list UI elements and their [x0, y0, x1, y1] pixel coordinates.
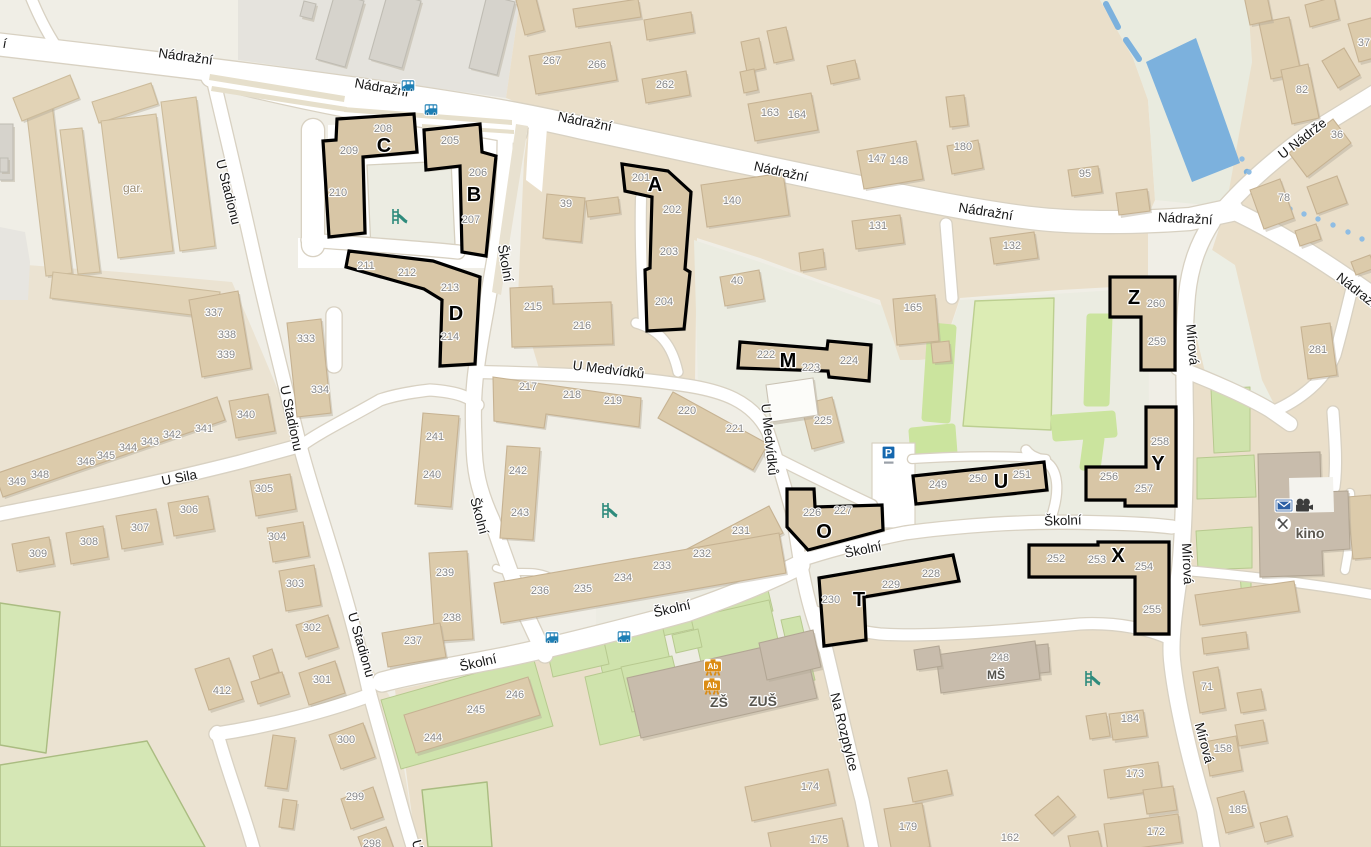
- svg-text:237: 237: [404, 635, 422, 647]
- svg-text:C: C: [377, 135, 391, 157]
- svg-text:214: 214: [441, 331, 459, 343]
- svg-text:340: 340: [237, 409, 255, 421]
- svg-text:302: 302: [303, 622, 321, 634]
- svg-text:303: 303: [286, 578, 304, 590]
- svg-text:131: 131: [869, 220, 887, 232]
- svg-text:205: 205: [441, 135, 459, 147]
- svg-text:202: 202: [663, 204, 681, 216]
- svg-text:239: 239: [436, 567, 454, 579]
- svg-text:223: 223: [802, 362, 820, 374]
- svg-text:163: 163: [761, 107, 779, 119]
- svg-text:299: 299: [346, 791, 364, 803]
- svg-text:251: 251: [1013, 469, 1031, 481]
- svg-text:229: 229: [882, 579, 900, 591]
- svg-text:208: 208: [374, 123, 392, 135]
- svg-text:D: D: [449, 303, 463, 325]
- svg-text:342: 342: [163, 429, 181, 441]
- svg-text:Y: Y: [1151, 453, 1165, 475]
- svg-text:307: 307: [131, 522, 149, 534]
- svg-text:228: 228: [922, 568, 940, 580]
- svg-text:349: 349: [8, 476, 26, 488]
- svg-text:158: 158: [1214, 743, 1232, 755]
- svg-text:Ab: Ab: [708, 662, 719, 671]
- svg-text:207: 207: [462, 214, 480, 226]
- svg-text:218: 218: [563, 389, 581, 401]
- svg-text:348: 348: [31, 469, 49, 481]
- svg-text:140: 140: [723, 195, 741, 207]
- svg-text:252: 252: [1047, 553, 1065, 565]
- svg-text:308: 308: [80, 536, 98, 548]
- svg-text:B: B: [467, 184, 481, 206]
- svg-text:184: 184: [1121, 713, 1139, 725]
- svg-text:231: 231: [732, 525, 750, 537]
- svg-text:204: 204: [655, 296, 673, 308]
- svg-text:213: 213: [441, 282, 459, 294]
- svg-text:211: 211: [357, 260, 375, 272]
- svg-text:185: 185: [1229, 804, 1247, 816]
- svg-text:306: 306: [180, 504, 198, 516]
- svg-text:339: 339: [217, 349, 235, 361]
- svg-text:305: 305: [255, 483, 273, 495]
- svg-text:Školní: Školní: [1044, 512, 1082, 528]
- svg-text:225: 225: [814, 415, 832, 427]
- svg-text:37: 37: [1358, 37, 1370, 49]
- svg-text:235: 235: [574, 583, 592, 595]
- svg-text:412: 412: [213, 685, 231, 697]
- svg-text:345: 345: [97, 450, 115, 462]
- svg-text:338: 338: [218, 329, 236, 341]
- svg-text:298: 298: [363, 838, 381, 847]
- svg-text:281: 281: [1309, 344, 1327, 356]
- svg-text:250: 250: [969, 473, 987, 485]
- svg-text:222: 222: [757, 349, 775, 361]
- svg-text:245: 245: [467, 704, 485, 716]
- svg-text:267: 267: [543, 55, 561, 67]
- svg-text:254: 254: [1135, 561, 1153, 573]
- svg-text:ZUŠ: ZUŠ: [749, 692, 777, 709]
- svg-text:259: 259: [1148, 336, 1166, 348]
- svg-text:230: 230: [822, 594, 840, 606]
- svg-text:kino: kino: [1296, 525, 1325, 541]
- svg-text:P: P: [885, 448, 892, 460]
- svg-text:95: 95: [1079, 168, 1091, 180]
- svg-text:71: 71: [1201, 681, 1213, 693]
- svg-text:242: 242: [509, 465, 527, 477]
- svg-text:MŠ: MŠ: [987, 667, 1005, 682]
- svg-text:ZŠ: ZŠ: [710, 693, 728, 710]
- svg-text:180: 180: [954, 141, 972, 153]
- svg-text:162: 162: [1001, 832, 1019, 844]
- svg-text:256: 256: [1100, 471, 1118, 483]
- svg-text:238: 238: [443, 612, 461, 624]
- svg-text:220: 220: [678, 405, 696, 417]
- svg-text:221: 221: [726, 423, 744, 435]
- svg-text:240: 240: [423, 469, 441, 481]
- svg-text:300: 300: [337, 734, 355, 746]
- svg-text:175: 175: [810, 834, 828, 846]
- svg-text:248: 248: [991, 652, 1009, 664]
- svg-text:243: 243: [511, 507, 529, 519]
- svg-text:148: 148: [890, 155, 908, 167]
- svg-text:206: 206: [469, 167, 487, 179]
- svg-text:246: 246: [506, 689, 524, 701]
- svg-text:210: 210: [329, 187, 347, 199]
- svg-text:227: 227: [834, 505, 852, 517]
- svg-text:232: 232: [693, 548, 711, 560]
- svg-text:Z: Z: [1128, 287, 1140, 309]
- svg-text:217: 217: [519, 381, 537, 393]
- svg-text:333: 333: [297, 333, 315, 345]
- svg-text:172: 172: [1147, 826, 1165, 838]
- svg-text:179: 179: [899, 821, 917, 833]
- svg-text:241: 241: [426, 431, 444, 443]
- svg-text:341: 341: [195, 423, 213, 435]
- svg-text:216: 216: [573, 320, 591, 332]
- svg-text:203: 203: [660, 246, 678, 258]
- svg-text:236: 236: [531, 585, 549, 597]
- svg-text:209: 209: [340, 145, 358, 157]
- svg-text:253: 253: [1088, 554, 1106, 566]
- svg-text:174: 174: [801, 781, 819, 793]
- svg-text:257: 257: [1135, 483, 1153, 495]
- svg-text:224: 224: [840, 355, 858, 367]
- svg-text:M: M: [780, 350, 797, 372]
- svg-text:X: X: [1111, 545, 1125, 567]
- svg-text:78: 78: [1278, 192, 1290, 204]
- svg-text:173: 173: [1126, 768, 1144, 780]
- svg-text:244: 244: [424, 732, 442, 744]
- svg-text:255: 255: [1143, 604, 1161, 616]
- svg-text:gar.: gar.: [123, 181, 143, 195]
- svg-text:249: 249: [929, 479, 947, 491]
- svg-text:212: 212: [398, 267, 416, 279]
- svg-text:334: 334: [311, 384, 329, 396]
- svg-text:147: 147: [868, 153, 886, 165]
- svg-text:258: 258: [1151, 436, 1169, 448]
- svg-text:T: T: [853, 589, 865, 611]
- svg-text:40: 40: [731, 275, 743, 287]
- svg-text:233: 233: [653, 560, 671, 572]
- svg-text:234: 234: [614, 572, 632, 584]
- svg-text:304: 304: [268, 531, 286, 543]
- svg-text:215: 215: [524, 301, 542, 313]
- svg-text:226: 226: [803, 507, 821, 519]
- svg-text:Nádražní: Nádražní: [1157, 210, 1213, 228]
- svg-text:219: 219: [604, 395, 622, 407]
- svg-text:Ab: Ab: [707, 681, 718, 690]
- svg-text:346: 346: [77, 456, 95, 468]
- svg-text:165: 165: [904, 302, 922, 314]
- svg-text:344: 344: [119, 442, 137, 454]
- svg-text:O: O: [816, 521, 832, 543]
- svg-text:39: 39: [560, 198, 572, 210]
- svg-text:U: U: [994, 471, 1008, 493]
- svg-text:262: 262: [656, 79, 674, 91]
- svg-text:343: 343: [141, 436, 159, 448]
- svg-text:A: A: [648, 174, 662, 196]
- svg-text:337: 337: [205, 307, 223, 319]
- svg-text:Mírová: Mírová: [1179, 543, 1196, 585]
- svg-text:164: 164: [788, 109, 806, 121]
- svg-text:266: 266: [588, 59, 606, 71]
- svg-text:82: 82: [1296, 84, 1308, 96]
- svg-text:36: 36: [1331, 129, 1343, 141]
- svg-text:132: 132: [1003, 240, 1021, 252]
- svg-text:260: 260: [1147, 298, 1165, 310]
- svg-text:301: 301: [313, 674, 331, 686]
- svg-text:309: 309: [29, 548, 47, 560]
